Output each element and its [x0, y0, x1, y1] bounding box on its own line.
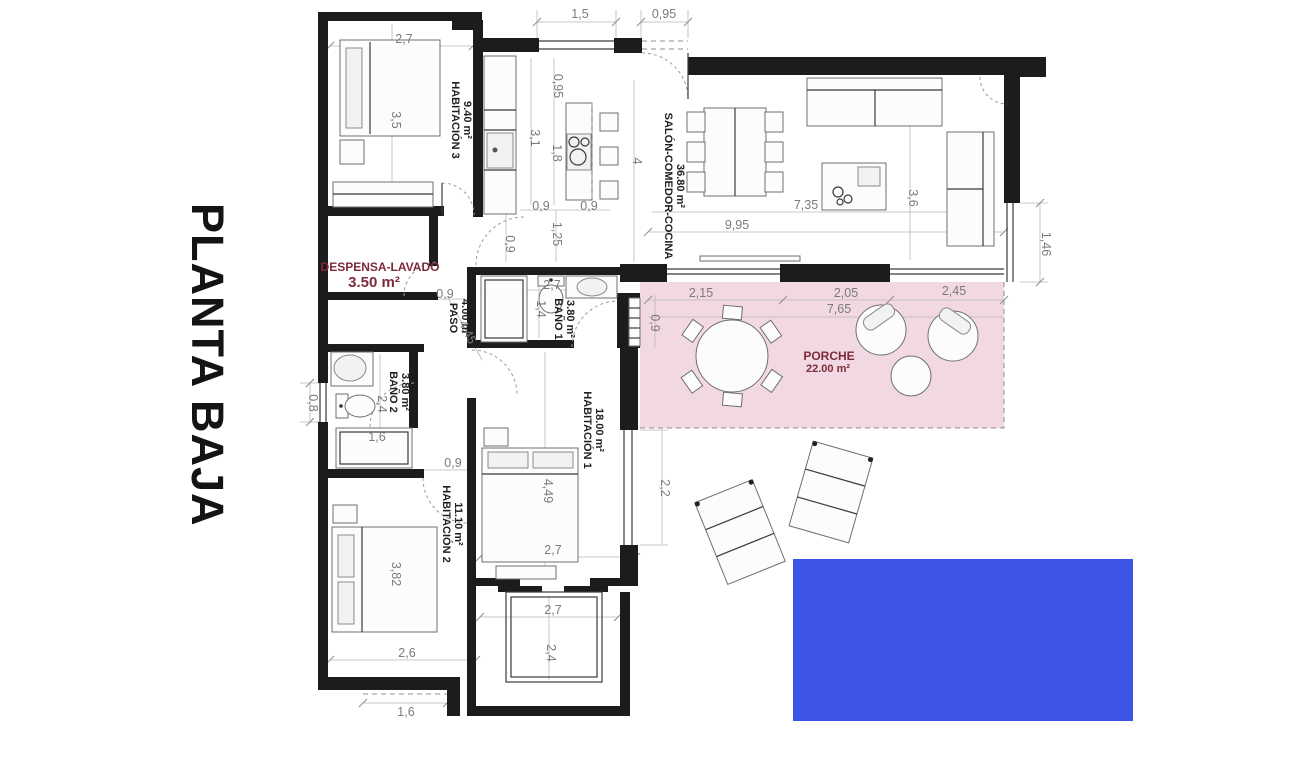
label-hab2-area: 11.10 m² [452, 502, 464, 546]
floor-plan: HABITACIÓN 3 9.40 m² SALÓN-COMEDOR-COCIN… [0, 0, 1315, 778]
nightstand [340, 140, 364, 164]
dim: 2,4 [375, 395, 389, 412]
label-despensa: DESPENSA-LAVADO [321, 260, 440, 274]
window-top [539, 41, 614, 49]
dim: 0,9 [532, 199, 549, 213]
dim: 2,7 [544, 543, 561, 557]
kitchen-sink [487, 133, 513, 168]
label-bano1: BAÑO 1 [552, 298, 565, 340]
nightstand [484, 428, 508, 446]
pool [793, 559, 1133, 721]
dim: 2,6 [398, 646, 415, 660]
label-hab1: HABITACIÓN 1 [581, 391, 594, 468]
label-hab3: HABITACIÓN 3 [449, 81, 462, 158]
label-paso: PASO [447, 303, 459, 334]
label-porche-area: 22.00 m² [806, 363, 850, 375]
dim: 2,7 [395, 32, 412, 46]
dim: 0,8 [306, 394, 320, 411]
window-porch-shutter [629, 298, 640, 346]
dim: 2,15 [689, 286, 713, 300]
bed-hab3 [340, 40, 440, 164]
dim: 4,49 [541, 479, 555, 503]
sink-2 [334, 355, 366, 381]
dim: 1,6 [397, 705, 414, 719]
nightstand [333, 505, 357, 523]
bed-hab1 [482, 428, 578, 579]
dim: 3,6 [906, 189, 920, 206]
label-bano2-area: 3.80 m² [399, 373, 411, 411]
label-hab1-area: 18.00 m² [593, 408, 605, 452]
kitchen-island [566, 103, 618, 200]
dim: 2,7 [543, 278, 560, 292]
dim: 0,9 [444, 456, 461, 470]
bench [496, 566, 556, 579]
stool [600, 181, 618, 199]
stool [600, 113, 618, 131]
shower-1 [481, 276, 527, 342]
dim: 3,82 [389, 562, 403, 586]
dim: 0,9 [580, 199, 597, 213]
stool [600, 147, 618, 165]
label-hab2: HABITACIÓN 2 [440, 485, 453, 562]
dim: 0,95 [652, 7, 676, 21]
label-despensa-area: 3.50 m² [348, 274, 400, 291]
label-hab3-area: 9.40 m² [461, 101, 473, 139]
sun-lounger [789, 441, 874, 543]
label-porche: PORCHE [803, 349, 854, 363]
sun-lounger [694, 479, 786, 585]
dim: 0,9 [503, 235, 517, 252]
label-salon: SALÓN-COMEDOR-COCINA [662, 113, 675, 260]
dim: 2,4 [544, 644, 558, 661]
dim: 3,1 [528, 129, 542, 146]
dim: 2,45 [942, 284, 966, 298]
door-bano1 [572, 301, 618, 347]
sofa-top [807, 78, 942, 126]
kitchen-counter [484, 56, 516, 214]
dim: 1,46 [1039, 232, 1053, 256]
floor-plan-page: PLANTA BAJA [0, 0, 1315, 778]
window-hab1 [624, 430, 632, 545]
dim: 1,8 [550, 144, 564, 161]
label-salon-area: 36.80 m² [674, 164, 686, 208]
dim: 2,05 [834, 286, 858, 300]
window-right-opening [1007, 203, 1013, 282]
dim: 1,25 [550, 222, 564, 246]
dim: 0,9 [436, 287, 453, 301]
dim: 3,5 [389, 111, 403, 128]
dim: 9,95 [725, 218, 749, 232]
dim: 1,5 [571, 7, 588, 21]
dim: 0,9 [648, 314, 662, 331]
dim: 7,35 [794, 198, 818, 212]
dim: 4 [630, 158, 644, 165]
sofa-right [947, 132, 994, 246]
porch-side-table [891, 356, 931, 396]
door-salon-corner [980, 77, 1007, 104]
dim: 1,4 [534, 300, 548, 317]
door-hab3 [442, 183, 474, 215]
label-bano1-area: 3.80 m² [564, 300, 576, 338]
dim: 2,2 [658, 479, 672, 496]
toilet-2 [336, 394, 375, 418]
door-entry [642, 53, 688, 99]
dim: 2,7 [544, 603, 561, 617]
dim: 1,6 [368, 430, 385, 444]
dim: 0,95 [551, 74, 565, 98]
dining-table [687, 108, 783, 196]
dim: 7,65 [827, 302, 851, 316]
entry-door-opening [642, 41, 688, 49]
coffee-table [822, 163, 886, 210]
sink-1 [577, 278, 607, 296]
bed-hab2 [332, 505, 437, 632]
